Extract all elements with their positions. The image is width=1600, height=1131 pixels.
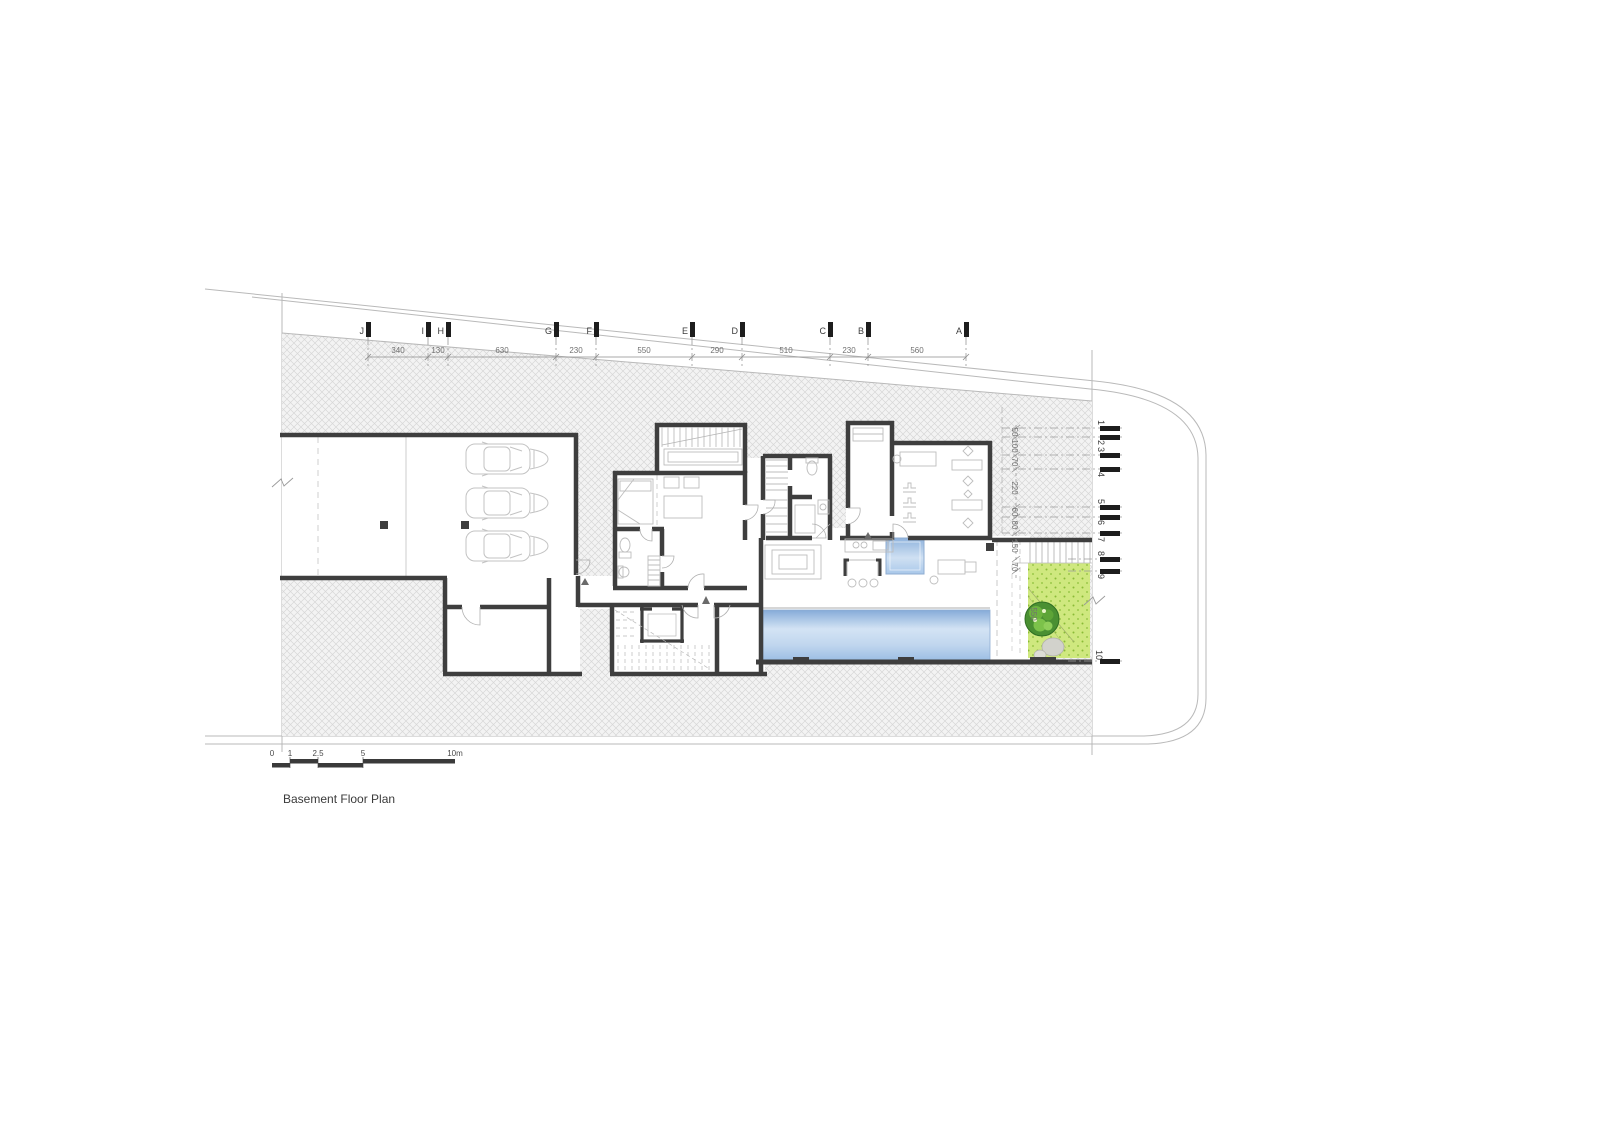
grid-number: 9: [1096, 574, 1106, 579]
dimension-label: 510: [779, 346, 793, 355]
grid-number: 6: [1096, 520, 1106, 525]
dimension-label: 70: [1010, 458, 1019, 467]
grid-letter: D: [732, 326, 739, 336]
dimension-label: 70: [1010, 563, 1019, 572]
scale-label: 0: [270, 749, 275, 758]
lap-pool: [763, 608, 990, 660]
dimension-label: 80: [1010, 521, 1019, 530]
scale-label: 1: [288, 749, 293, 758]
dimension-label: 130: [431, 346, 445, 355]
dimension-label: 50: [1010, 428, 1019, 437]
dimension-label: 100: [1010, 439, 1019, 453]
spa-pool: [886, 538, 924, 574]
grid-number: 4: [1096, 472, 1106, 477]
grid-letter: H: [438, 326, 445, 336]
grid-number: 1: [1096, 420, 1106, 425]
dimension-label: 150: [1010, 539, 1019, 553]
grid-number: 10: [1094, 650, 1104, 660]
grid-letter: C: [820, 326, 827, 336]
grid-letter: I: [421, 326, 424, 336]
dimension-label: 230: [569, 346, 583, 355]
grid-letter: E: [682, 326, 688, 336]
dimension-label: 630: [495, 346, 509, 355]
dimension-label: 550: [637, 346, 651, 355]
grid-letter: A: [956, 326, 962, 336]
floor-plan-drawing: J I H G F E D C B A 340 130 630 230 550 …: [0, 0, 1600, 1131]
page-title: Basement Floor Plan: [283, 792, 395, 806]
dimension-label: 60: [1010, 508, 1019, 517]
scale-label: 10m: [447, 749, 463, 758]
dimension-label: 220: [1010, 481, 1019, 495]
dimension-label: 340: [391, 346, 405, 355]
grid-number: 5: [1096, 499, 1106, 504]
grid-number: 7: [1096, 537, 1106, 542]
dimension-label: 560: [910, 346, 924, 355]
scale-bar: 0 1 2.5 5 10m: [270, 749, 463, 768]
grid-letter: B: [858, 326, 864, 336]
scale-label: 2.5: [312, 749, 324, 758]
scale-label: 5: [361, 749, 366, 758]
grid-number: 2: [1096, 440, 1106, 445]
grid-letter: J: [360, 326, 365, 336]
grid-number: 3: [1096, 447, 1106, 452]
dimension-label: 290: [710, 346, 724, 355]
grid-letter: G: [545, 326, 552, 336]
floor-plan-page: J I H G F E D C B A 340 130 630 230 550 …: [0, 0, 1600, 1131]
garden-dimension-label: 550: [1029, 607, 1038, 621]
grid-number: 8: [1096, 551, 1106, 556]
dimension-label: 230: [842, 346, 856, 355]
grid-letter: F: [587, 326, 593, 336]
